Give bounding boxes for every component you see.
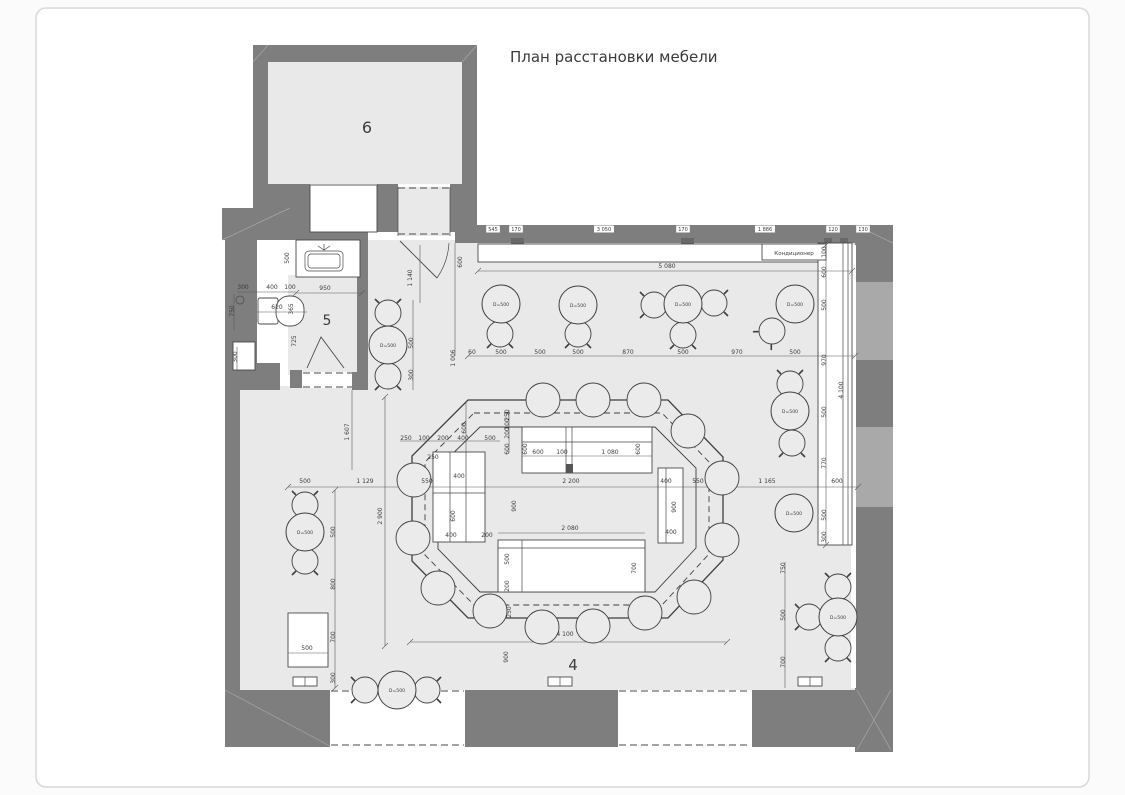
dimension-label: 200 [481, 532, 493, 539]
table-diameter-label: D=500 [389, 688, 405, 694]
dimension-label: 400 [457, 435, 469, 442]
side-table [288, 613, 328, 667]
dimension-label: 600 [635, 443, 642, 455]
table-diameter-label: D=500 [786, 511, 802, 517]
bar-stool [396, 521, 430, 555]
dimension-label: 750 [229, 305, 236, 317]
dimension-label: 700 [330, 631, 337, 643]
bar-stool [525, 610, 559, 644]
dimension-label: 500 [821, 299, 828, 311]
bar-stool [705, 523, 739, 557]
dimension-chip-label: 130 [858, 227, 868, 233]
dimension-label: 500 [504, 553, 511, 565]
dimension-label: 500 [821, 509, 828, 521]
chair [414, 677, 441, 703]
chair [565, 321, 591, 348]
dimension-label: 800 [330, 578, 337, 590]
dimension-label: 100 [556, 449, 568, 456]
chair [375, 299, 401, 326]
dimension-label: 300 [408, 369, 415, 381]
dimension-chip-label: 1 886 [758, 227, 772, 233]
right-bar-counter [818, 243, 852, 545]
dimension-label: 500 [677, 349, 689, 356]
dimension-label: 600 [504, 443, 511, 455]
round-table: D=500 [819, 598, 857, 636]
dimension-label: 500 [572, 349, 584, 356]
bar-left-counter [433, 452, 485, 542]
table-diameter-label: D=500 [675, 302, 691, 308]
room-label-6: 6 [362, 118, 372, 137]
dimension-label: 600 [457, 256, 464, 268]
dimension-label: 300 [821, 531, 828, 543]
chair [701, 290, 728, 316]
dimension-label: 700 [780, 656, 787, 668]
room6-niche [310, 185, 377, 232]
dimension-label: 620 [271, 304, 283, 311]
bar-stool [576, 609, 610, 643]
table-diameter-label: D=500 [493, 302, 509, 308]
dimension-label: 770 [821, 457, 828, 469]
round-table: D=500 [286, 513, 324, 551]
bar-stool [526, 383, 560, 417]
dimension-label: 900 [511, 500, 518, 512]
dimension-chip-label: 170 [511, 227, 521, 233]
dimension-label: 300 [232, 351, 239, 363]
chair [351, 677, 378, 703]
sink-counter [296, 240, 360, 277]
dimension-label: 500 [789, 349, 801, 356]
dimension-label: 725 [291, 335, 298, 347]
dimension-label: 970 [821, 354, 828, 366]
dimension-label: 1 080 [601, 449, 618, 456]
dimension-label: 1 140 [407, 269, 414, 286]
dimension-label: 60 [468, 349, 476, 356]
dimension-label: 750 [780, 562, 787, 574]
dimension-label: 500 [534, 349, 546, 356]
dimension-label: 100 [418, 435, 430, 442]
chair [779, 430, 805, 457]
dimension-label: 2 200 [562, 478, 579, 485]
round-table: D=500 [559, 286, 597, 324]
toilet-tank [258, 298, 278, 324]
bar-stool [421, 571, 455, 605]
dimension-label: 600 [461, 422, 468, 434]
dimension-label: 250 [427, 454, 439, 461]
dimension-label: 1 607 [344, 423, 351, 440]
dimension-label: 950 [319, 285, 331, 292]
dimension-label: 400 [453, 473, 465, 480]
dimension-label: 600 [450, 510, 457, 522]
dimension-label: 5 080 [658, 263, 675, 270]
dimension-label: 500 [780, 609, 787, 621]
bar-stool [473, 594, 507, 628]
dimension-label: 970 [731, 349, 743, 356]
table-diameter-label: D=500 [830, 615, 846, 621]
dimension-label: 500 [484, 435, 496, 442]
dimension-label: 250 [400, 435, 412, 442]
dimension-label: 600 [532, 449, 544, 456]
dimension-label: 500 [330, 526, 337, 538]
bar-stool [628, 596, 662, 630]
dimension-label: 400 [445, 532, 457, 539]
dimension-label: 400 [665, 529, 677, 536]
chair [375, 363, 401, 390]
dimension-label: 500 [408, 337, 415, 349]
dimension-label: 100 [821, 246, 828, 258]
chair [640, 292, 667, 318]
page-title: План расстановки мебели [510, 48, 718, 66]
round-table: D=500 [771, 392, 809, 430]
dimension-label: 550 [692, 478, 704, 485]
dimension-label: 2 080 [561, 525, 578, 532]
dimension-label: 300 [237, 284, 249, 291]
ac-unit-label: Кондиционер [774, 251, 814, 257]
dimension-label: 550 [421, 478, 433, 485]
bar-stool [677, 580, 711, 614]
dimension-label: 500 [821, 406, 828, 418]
bar-stool [705, 461, 739, 495]
dimension-label: 1 006 [450, 349, 457, 366]
floor-plan-canvas: План расстановки мебели [0, 0, 1125, 795]
dimension-label: 700 [631, 562, 638, 574]
dimension-label: 500 [299, 478, 311, 485]
dimension-label: 300 [330, 672, 337, 684]
dimension-chip-label: 3 050 [597, 227, 611, 233]
dimension-label: 500 [284, 252, 291, 264]
table-diameter-label: D=500 [570, 303, 586, 309]
round-table: D=500 [776, 285, 814, 323]
round-table: D=500 [482, 285, 520, 323]
chair [825, 635, 851, 662]
table-diameter-label: D=500 [782, 409, 798, 415]
dimension-label: 4 100 [556, 631, 573, 638]
dimension-chip-label: 545 [488, 227, 498, 233]
chair [487, 321, 513, 348]
chair [292, 548, 318, 575]
room-label-5: 5 [323, 313, 332, 329]
room-label-4: 4 [568, 656, 578, 674]
dimension-label: 400 [266, 284, 278, 291]
bar-stool [627, 383, 661, 417]
dimension-label: 600 [821, 266, 828, 278]
dimension-chip-label: 120 [828, 227, 838, 233]
dimension-label: 200 [437, 435, 449, 442]
dimension-label: 365 [288, 303, 295, 315]
dimension-label: 500 [495, 349, 507, 356]
round-table: D=500 [378, 671, 416, 709]
floor-plan-page: План расстановки мебели [0, 0, 1125, 795]
dimension-label: 500 [301, 645, 313, 652]
bar-stool [576, 383, 610, 417]
dimension-label: 600 [522, 443, 529, 455]
dimension-label: 870 [622, 349, 634, 356]
dimension-label: 400 [660, 478, 672, 485]
round-table: D=500 [369, 326, 407, 364]
dimension-label: 250 [506, 606, 513, 618]
dimension-chip-label: 170 [678, 227, 688, 233]
dimension-label: 1 129 [356, 478, 373, 485]
dimension-label: 900 [503, 651, 510, 663]
dimension-label: 1 165 [758, 478, 775, 485]
dimension-label: 4 100 [838, 381, 845, 398]
bar-stool [671, 414, 705, 448]
dimension-label: 200 [504, 580, 511, 592]
chair [670, 322, 696, 349]
chair [795, 604, 822, 630]
round-table: D=500 [664, 285, 702, 323]
table-diameter-label: D=500 [787, 302, 803, 308]
dimension-label: 200 [504, 427, 511, 439]
table-diameter-label: D=500 [297, 530, 313, 536]
bar-equipment [566, 464, 573, 473]
round-table: D=500 [775, 494, 813, 532]
dimension-label: 100 [284, 284, 296, 291]
table-diameter-label: D=500 [380, 343, 396, 349]
dimension-label: 600 [831, 478, 843, 485]
chair [825, 573, 851, 600]
dimension-label: 900 [671, 501, 678, 513]
dimension-label: 2 900 [377, 507, 384, 524]
